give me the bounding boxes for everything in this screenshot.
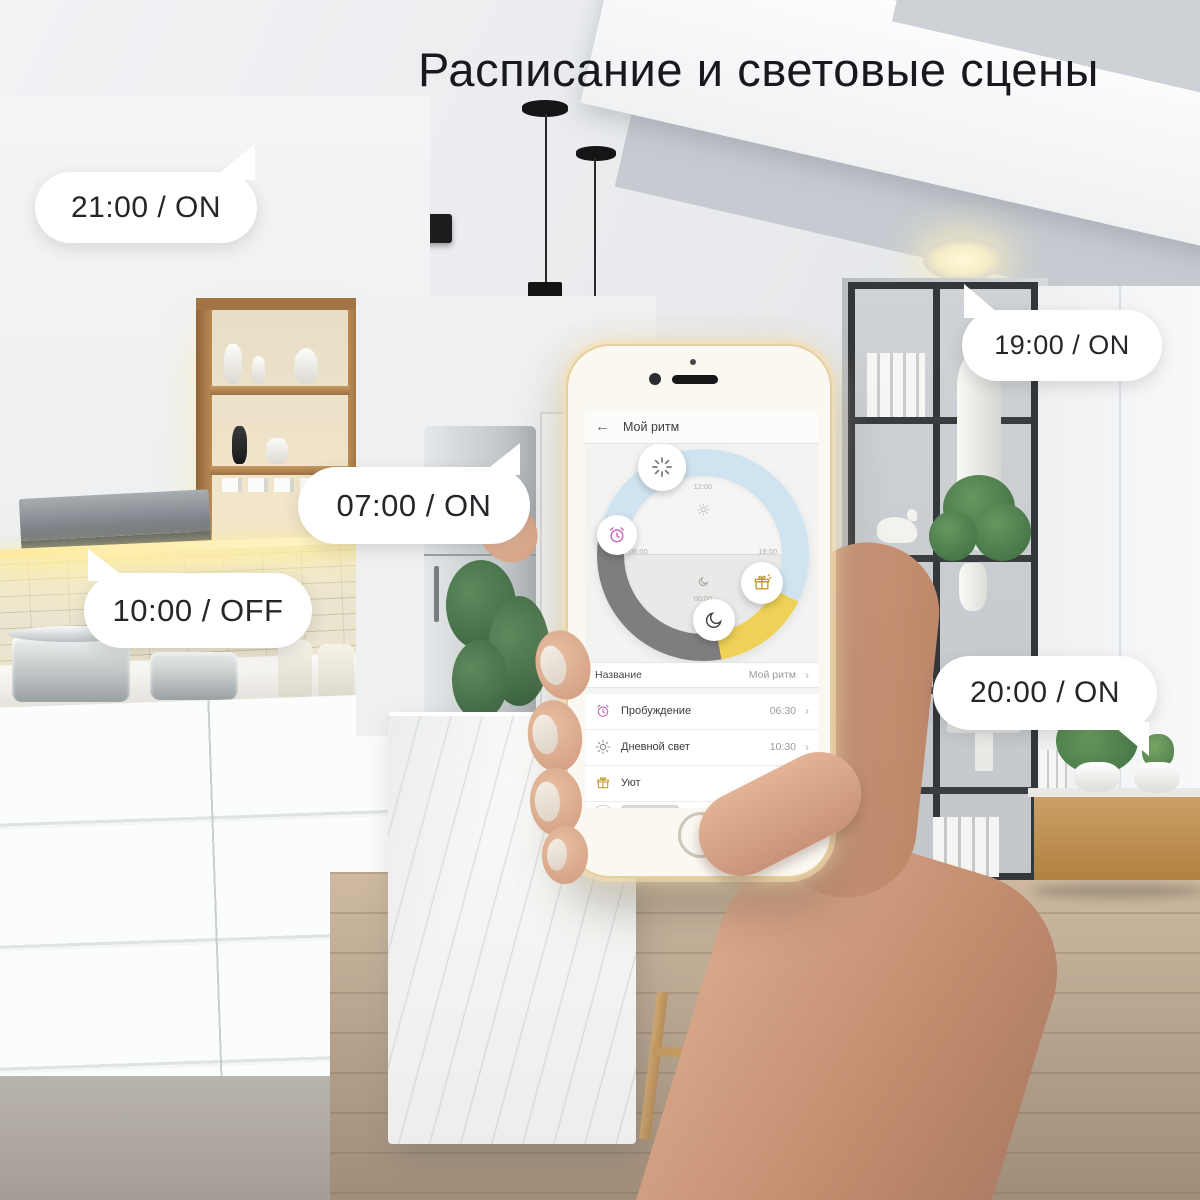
houseplant	[452, 640, 508, 720]
gift-icon	[752, 573, 772, 593]
promo-scene: ← Мой ритм 12:00 06:00 18:00 00:00	[0, 0, 1200, 1200]
sun-icon	[690, 496, 716, 522]
decor-vase	[232, 426, 247, 464]
app-screen: ← Мой ритм 12:00 06:00 18:00 00:00	[585, 410, 818, 808]
plant-pot	[1074, 762, 1120, 792]
partial-icon	[595, 805, 611, 808]
callout-label: 20:00 / ON	[970, 676, 1120, 710]
scene-time: 06:30	[770, 705, 796, 717]
canister	[278, 640, 312, 698]
front-camera	[649, 373, 661, 385]
phone-mic-dot	[690, 359, 696, 365]
fridge-handle	[434, 566, 439, 622]
books	[867, 353, 925, 417]
daylight-sparkle-icon	[650, 455, 674, 479]
name-row[interactable]: Название Мой ритм ›	[585, 662, 818, 688]
shelf-plant	[973, 503, 1031, 561]
callout-label: 07:00 / ON	[337, 488, 492, 524]
fingernail	[546, 838, 567, 871]
shelf-plant	[929, 511, 977, 561]
callout-10-00: 10:00 / OFF	[84, 573, 312, 648]
scene-label: Уют	[621, 777, 641, 789]
moon-icon	[704, 610, 724, 630]
decor-vase	[224, 344, 242, 384]
scene-row-wake[interactable]: Пробуждение 06:30 ›	[585, 694, 818, 730]
app-header: ← Мой ритм	[585, 410, 818, 444]
chevron-right-icon: ›	[805, 668, 809, 682]
fingernail	[530, 713, 560, 756]
page-title: Расписание и световые сцены	[418, 42, 1099, 97]
slim-vase	[959, 563, 987, 611]
shelving-shelf	[855, 417, 1031, 424]
callout-19-00: 19:00 / ON	[962, 310, 1162, 381]
shelf-board	[210, 386, 350, 395]
callout-20-00: 20:00 / ON	[933, 656, 1157, 730]
app-title: Мой ритм	[623, 420, 679, 434]
shelf-board	[196, 298, 364, 310]
gift-icon	[595, 775, 613, 793]
pendant-cord	[545, 114, 547, 284]
callout-label: 10:00 / OFF	[113, 593, 284, 629]
callout-label: 21:00 / ON	[71, 191, 221, 225]
name-row-value: Мой ритм	[749, 669, 796, 681]
callout-21-00: 21:00 / ON	[35, 172, 257, 243]
earpiece-speaker	[672, 375, 718, 384]
plant-pot	[1134, 762, 1180, 793]
dial-marker-daylight[interactable]	[638, 443, 686, 491]
sideboard	[1034, 796, 1200, 880]
sideboard-shadow	[1030, 884, 1200, 898]
canister	[318, 644, 354, 698]
recessed-ceiling-light	[923, 239, 1003, 281]
dial-marker-night[interactable]	[693, 599, 735, 641]
sun-icon	[595, 739, 613, 757]
cooking-pot	[150, 652, 238, 700]
decor-vase	[294, 348, 318, 384]
chevron-right-icon: ›	[805, 704, 809, 718]
alarm-clock-icon	[595, 703, 613, 721]
callout-label: 19:00 / ON	[994, 330, 1130, 361]
partial-label	[621, 805, 679, 808]
sideboard-top	[1028, 788, 1200, 797]
day-night-divider	[626, 554, 780, 555]
bird-figurine	[877, 517, 917, 543]
name-row-label: Название	[595, 669, 642, 681]
shelving-divider	[933, 289, 940, 873]
scene-row-daylight[interactable]: Дневной свет 10:30 ›	[585, 730, 818, 766]
moon-icon	[692, 570, 714, 592]
fingernail	[536, 643, 570, 688]
callout-07-00: 07:00 / ON	[298, 467, 530, 544]
decor-vase	[252, 356, 265, 384]
table-lamp-base	[975, 733, 993, 771]
scene-label: Дневной свет	[621, 741, 690, 753]
alarm-clock-icon	[607, 525, 627, 545]
decor-vase	[266, 438, 288, 464]
dial-marker-wake[interactable]	[597, 515, 637, 555]
dial-marker-cozy[interactable]	[741, 562, 783, 604]
scene-label: Пробуждение	[621, 705, 691, 717]
pendant-mount	[576, 146, 616, 161]
fingernail	[534, 781, 562, 823]
scene-time: 10:30	[770, 741, 796, 753]
chevron-right-icon: ›	[805, 740, 809, 754]
back-button[interactable]: ←	[595, 418, 610, 436]
